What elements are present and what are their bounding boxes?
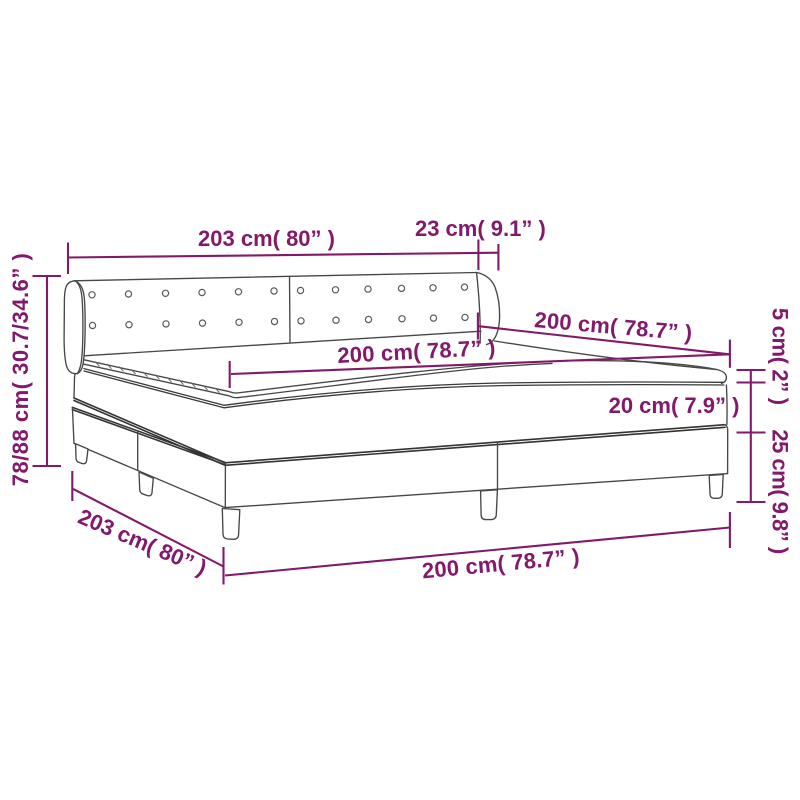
svg-text:23 cm( 9.1” ): 23 cm( 9.1” ) [415, 216, 546, 241]
svg-text:78/88 cm( 30.7/34.6” ): 78/88 cm( 30.7/34.6” ) [8, 253, 33, 487]
svg-text:5 cm( 2” ): 5 cm( 2” ) [768, 308, 793, 405]
svg-text:203 cm( 80” ): 203 cm( 80” ) [198, 226, 335, 251]
svg-text:25 cm( 9.8” ): 25 cm( 9.8” ) [768, 429, 793, 554]
svg-text:20 cm( 7.9” ): 20 cm( 7.9” ) [609, 393, 740, 418]
